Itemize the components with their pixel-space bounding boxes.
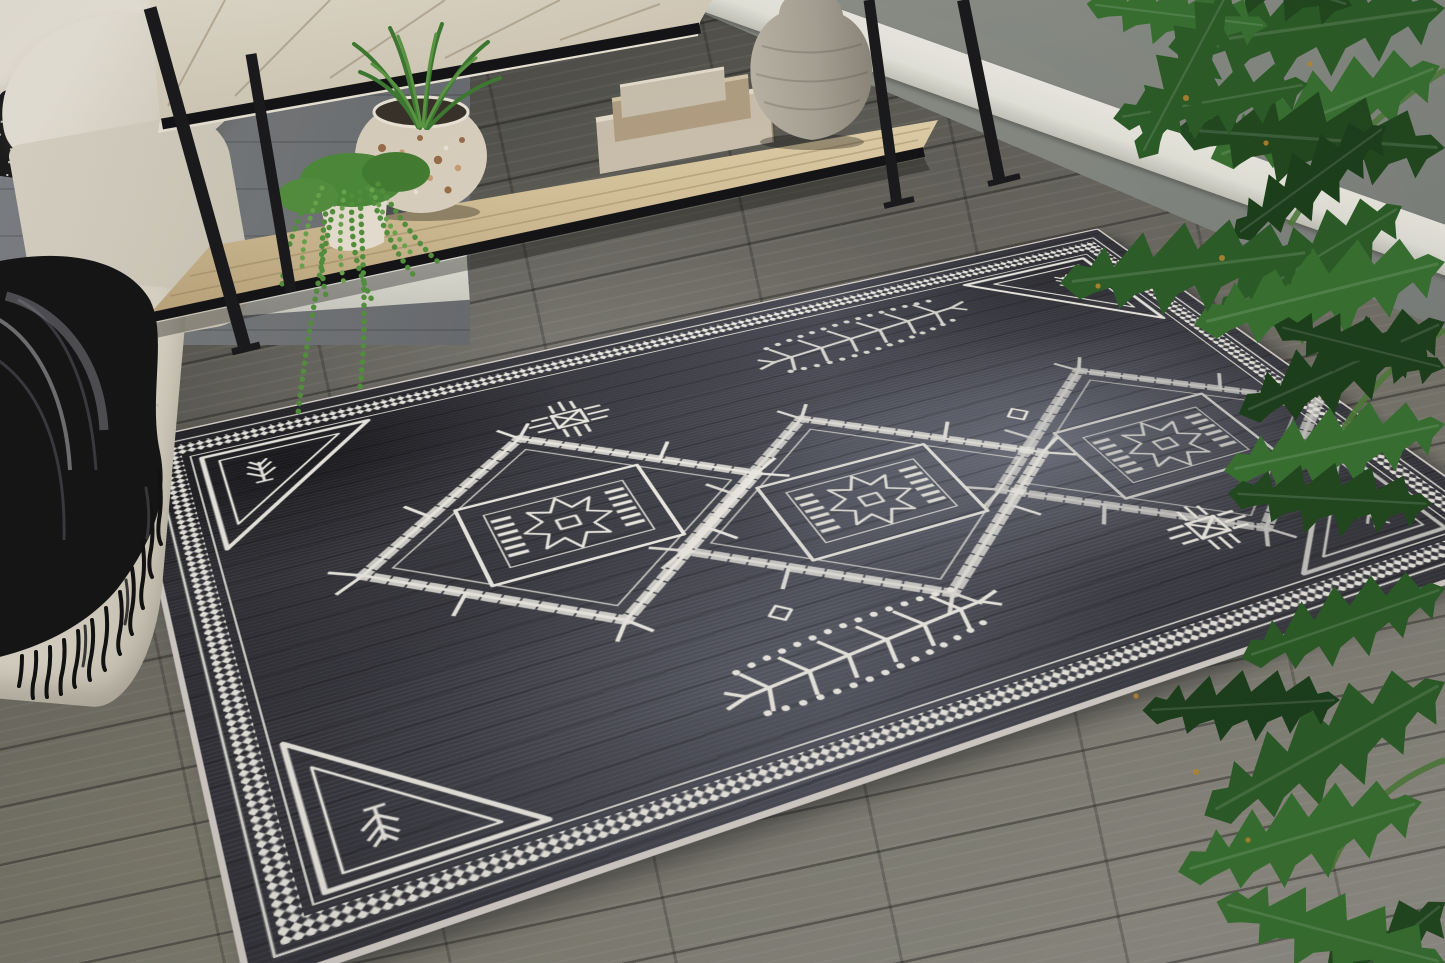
living-room-scene: [0, 0, 1445, 963]
rug-medallion-left: [296, 381, 864, 709]
rug-medallion-center: [593, 363, 1173, 678]
rug-cross-motif: [521, 394, 619, 445]
